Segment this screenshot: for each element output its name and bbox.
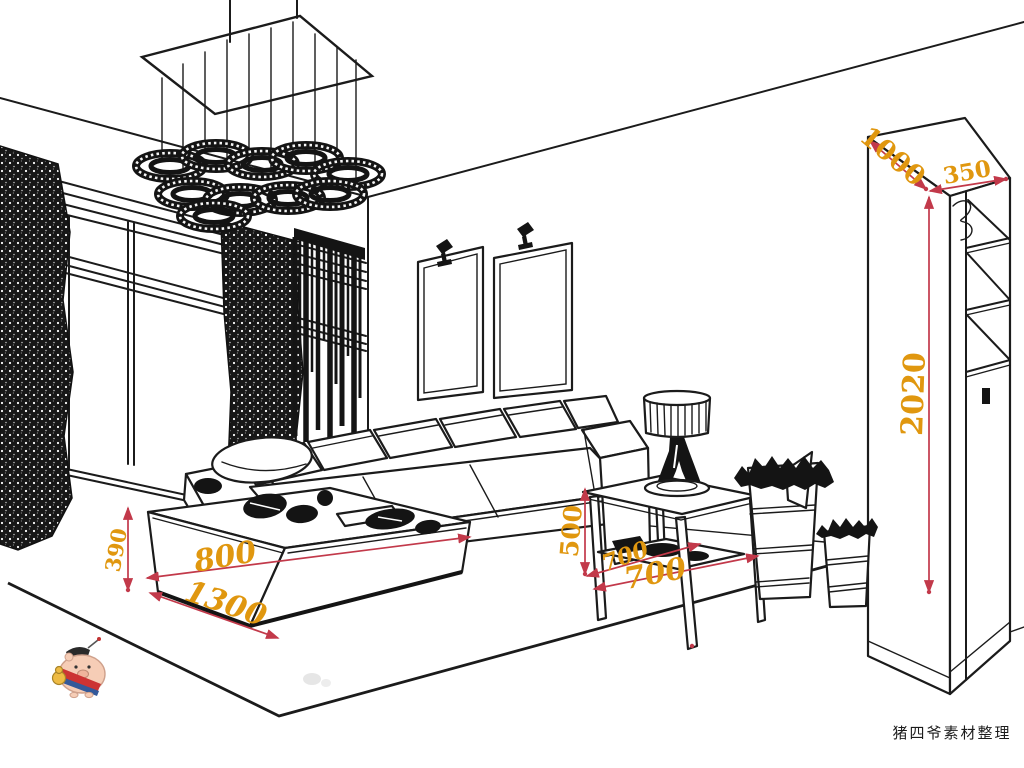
chandelier-ring-shades (136, 143, 382, 229)
sketch-canvas: 1000 350 2020 390 800 1300 500 700 700 猪… (0, 0, 1024, 768)
round-throw-pillow (210, 433, 314, 487)
credit-text: 猪四爷素材整理 (892, 724, 1011, 742)
wall-spotlight-2 (517, 222, 534, 250)
display-cabinet (868, 118, 1010, 694)
watermark-ghost-dot (303, 673, 321, 685)
waste-basket-large (734, 452, 834, 599)
picture-frame-1 (418, 247, 483, 400)
striped-sheer-curtain (294, 228, 365, 445)
wall-spotlight-1 (436, 239, 453, 267)
dim-coffee-table-height: 390 (100, 526, 132, 574)
dim-side-table-height: 500 (555, 504, 588, 559)
chandelier (136, 0, 382, 229)
cabinet-door-handle (982, 388, 990, 404)
picture-frame-2 (494, 243, 572, 398)
pig-mascot-watermark (53, 637, 332, 698)
watermark-ghost-dot (321, 679, 331, 687)
curtain-left (0, 146, 73, 550)
dim-cabinet-height: 2020 (895, 352, 933, 437)
area-rug (8, 563, 838, 716)
living-room-dimension-sketch: 1000 350 2020 390 800 1300 500 700 700 猪… (0, 0, 1024, 768)
